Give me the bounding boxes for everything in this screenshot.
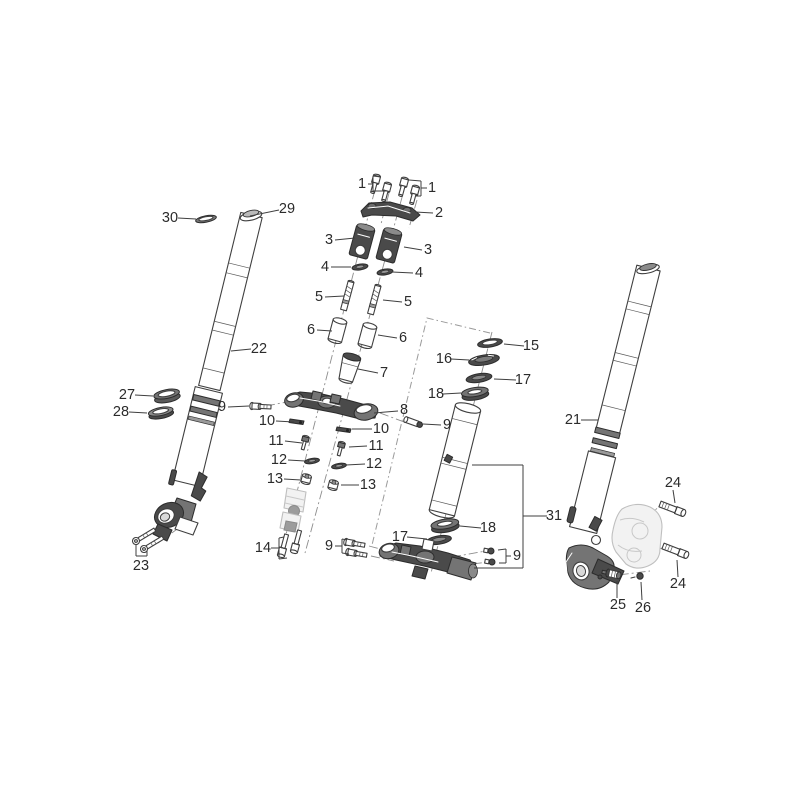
bearing-race-17-upper: [465, 372, 492, 385]
steering-stem-31: [428, 401, 481, 520]
callout-label-25: 25: [610, 597, 626, 613]
riser-washer-4: [352, 263, 369, 271]
callout-leader-22: [231, 349, 251, 351]
callout-leader-3: [404, 247, 422, 250]
ghost-brake-caliper: [612, 504, 662, 568]
callout-label-12: 12: [271, 452, 287, 468]
callout-label-23: 23: [133, 558, 149, 574]
callout-label-1: 1: [428, 180, 436, 196]
callout-label-18: 18: [480, 520, 496, 536]
caliper-bolt-24: [659, 501, 687, 517]
snap-ring-30: [195, 214, 217, 224]
callout-leader-18: [443, 393, 461, 394]
callout-label-13: 13: [360, 477, 376, 493]
callout-label-6: 6: [307, 322, 315, 338]
caliper-mount-hole: [592, 536, 601, 545]
callout-leader-24: [677, 560, 678, 577]
callout-leader-5: [383, 300, 402, 302]
callout-leader-24: [673, 490, 675, 503]
callout-label-12: 12: [366, 456, 382, 472]
pinch-bolt-9: [250, 402, 272, 410]
stud-bolt-11: [335, 441, 345, 457]
callout-leader-16: [451, 359, 469, 360]
callout-leader-12: [346, 464, 365, 465]
riser-washer-4: [377, 268, 394, 276]
right-fork-leg-assembly: [566, 262, 690, 589]
callout-leader-26: [641, 582, 642, 600]
callout-label-14: 14: [255, 540, 271, 556]
callout-label-7: 7: [380, 365, 388, 381]
upper-triple-clamp-8: [283, 391, 379, 423]
callout-label-1: 1: [358, 176, 366, 192]
washer-12: [331, 462, 347, 469]
callout-label-22: 22: [251, 341, 267, 357]
callout-leader-1: [409, 180, 421, 181]
callout-leader-6: [378, 335, 397, 338]
callout-leader-4: [392, 272, 413, 273]
clamp-bolt-14: [290, 530, 303, 555]
callout-label-11: 11: [268, 433, 283, 449]
callout-label-5: 5: [315, 289, 323, 305]
callout-label-10: 10: [373, 421, 389, 437]
nut-13: [327, 479, 339, 491]
callout-label-29: 29: [279, 201, 295, 217]
callout-leader-5: [325, 296, 344, 297]
callout-label-11: 11: [368, 438, 383, 454]
callout-leader-18: [460, 526, 481, 528]
bearing-18-upper: [461, 385, 490, 402]
callout-label-4: 4: [415, 265, 423, 281]
handlebar-upper-holder-2: [361, 202, 420, 221]
callout-label-21: 21: [565, 412, 581, 428]
callout-label-3: 3: [424, 242, 432, 258]
callout-leader-3: [335, 238, 355, 240]
riser-stud-5: [341, 280, 355, 311]
right-fork-tube-21: [566, 264, 664, 534]
stem-nut-15: [477, 337, 503, 349]
sensor-washer: [598, 575, 602, 579]
callout-leader-30: [178, 218, 196, 219]
callout-label-9: 9: [325, 538, 333, 554]
callout-label-26: 26: [635, 600, 651, 616]
callout-label-9: 9: [513, 548, 521, 564]
lower-triple-clamp: [343, 538, 495, 580]
oil-seal-28: [148, 405, 175, 421]
callout-leader-9: [423, 424, 441, 425]
callout-label-28: 28: [113, 404, 129, 420]
riser-stud-5: [368, 284, 382, 315]
callout-label-24: 24: [670, 576, 686, 592]
callout-label-4: 4: [321, 259, 329, 275]
left-axle-clamp: [150, 498, 198, 541]
callout-label-9: 9: [218, 399, 226, 415]
handlebar-riser-3: [376, 226, 403, 263]
callout-label-18: 18: [428, 386, 444, 402]
callout-label-15: 15: [523, 338, 539, 354]
callout-leader-17: [407, 537, 427, 539]
callout-leader-11: [285, 441, 302, 443]
riser-spacer-6: [357, 322, 377, 350]
callout-label-16: 16: [436, 351, 452, 367]
callout-label-8: 8: [400, 402, 408, 418]
callout-label-6: 6: [399, 330, 407, 346]
dust-seal-27: [153, 387, 181, 405]
callout-leader-9: [228, 406, 249, 407]
callout-label-31: 31: [546, 508, 562, 524]
callout-leader-15: [504, 344, 524, 346]
callout-label-24: 24: [665, 475, 681, 491]
handlebar-riser-3: [349, 222, 376, 259]
washer-12: [304, 457, 320, 464]
adjusting-nut-16: [468, 353, 500, 368]
lower-pinch-bolt-9-right: [484, 548, 495, 565]
exploded-diagram-canvas: 1123344556678999910101111121213131415161…: [0, 0, 800, 800]
steering-stem-group: [426, 337, 503, 546]
bearing-18-lower: [430, 517, 460, 534]
handlebar-clamp-group: [327, 174, 420, 386]
callout-leader-28: [129, 412, 147, 413]
callout-label-5: 5: [404, 294, 412, 310]
clamp-screw-1: [397, 177, 409, 198]
ghost-clamp-reference: [280, 488, 306, 532]
callout-leader-9: [498, 549, 506, 550]
callout-leader-13: [284, 479, 301, 480]
callout-leader-17: [494, 379, 516, 380]
callout-label-2: 2: [435, 205, 443, 221]
callout-leader-27: [135, 395, 153, 396]
callout-label-27: 27: [119, 387, 135, 403]
caliper-bolt-24: [662, 543, 690, 559]
damper-cone-7: [336, 351, 361, 385]
callout-leader-7: [358, 369, 378, 373]
nut-13: [300, 473, 312, 485]
left-fork-leg-assembly: [131, 209, 272, 554]
clamp-screw-1: [380, 182, 392, 203]
callout-label-10: 10: [259, 413, 275, 429]
sensor-bolt-26: [631, 573, 643, 579]
callout-label-9: 9: [443, 417, 451, 433]
callout-leader-12: [288, 460, 305, 461]
callout-label-3: 3: [325, 232, 333, 248]
callout-leader-11: [349, 446, 367, 447]
callout-leader-14: [279, 558, 287, 559]
callout-label-30: 30: [162, 210, 178, 226]
callout-label-17: 17: [392, 529, 408, 545]
exploded-diagram-page: 1123344556678999910101111121213131415161…: [0, 0, 800, 800]
callout-label-13: 13: [267, 471, 283, 487]
clamp-screw-1: [408, 185, 420, 206]
callout-label-17: 17: [515, 372, 531, 388]
